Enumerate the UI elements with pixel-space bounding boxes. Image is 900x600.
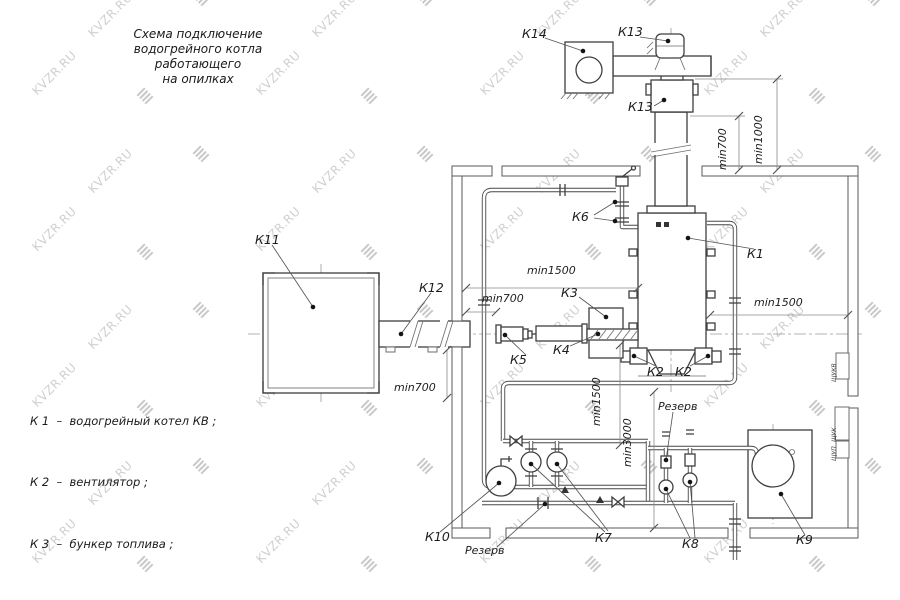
smoke-exhauster-k14	[561, 42, 613, 99]
fuel-bunker-k11	[263, 273, 379, 393]
reference-dots	[311, 39, 784, 507]
circulation-pumps-k7	[521, 449, 567, 476]
feeder-drive-k5	[496, 325, 536, 343]
control-cabinets	[835, 353, 849, 458]
piping	[478, 184, 757, 560]
drawing-sheet: ≣KVZR.RU≣KVZR.RU≣KVZR.RU≣KVZR.RU≣KVZR.RU…	[0, 0, 900, 600]
ash-collector-k13	[646, 72, 698, 112]
flue-duct	[613, 56, 711, 76]
chimney-flue	[651, 107, 691, 206]
screw-feeder-k4	[536, 324, 587, 343]
diagram-canvas	[0, 0, 900, 600]
water-tank-k9-coil	[752, 445, 795, 487]
